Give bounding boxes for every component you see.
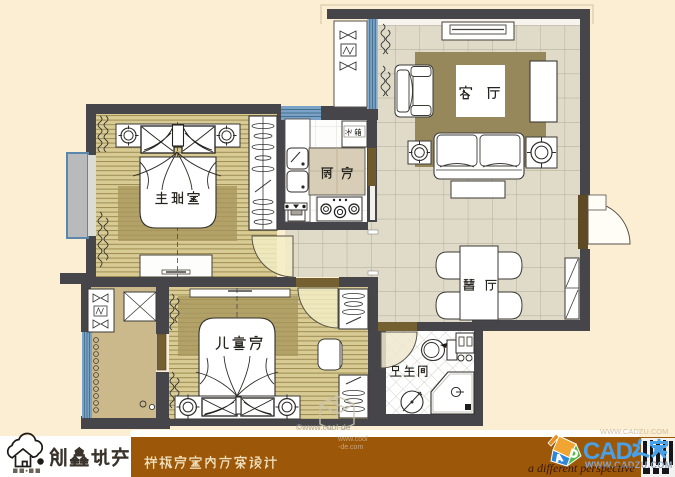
svg-text:-de.com: -de.com [338, 444, 363, 451]
svg-text:WWW.CADZU.COM: WWW.CADZU.COM [600, 427, 668, 436]
svg-text:a different perspective: a different perspective [528, 461, 636, 475]
svg-text:www.cool: www.cool [337, 436, 368, 443]
